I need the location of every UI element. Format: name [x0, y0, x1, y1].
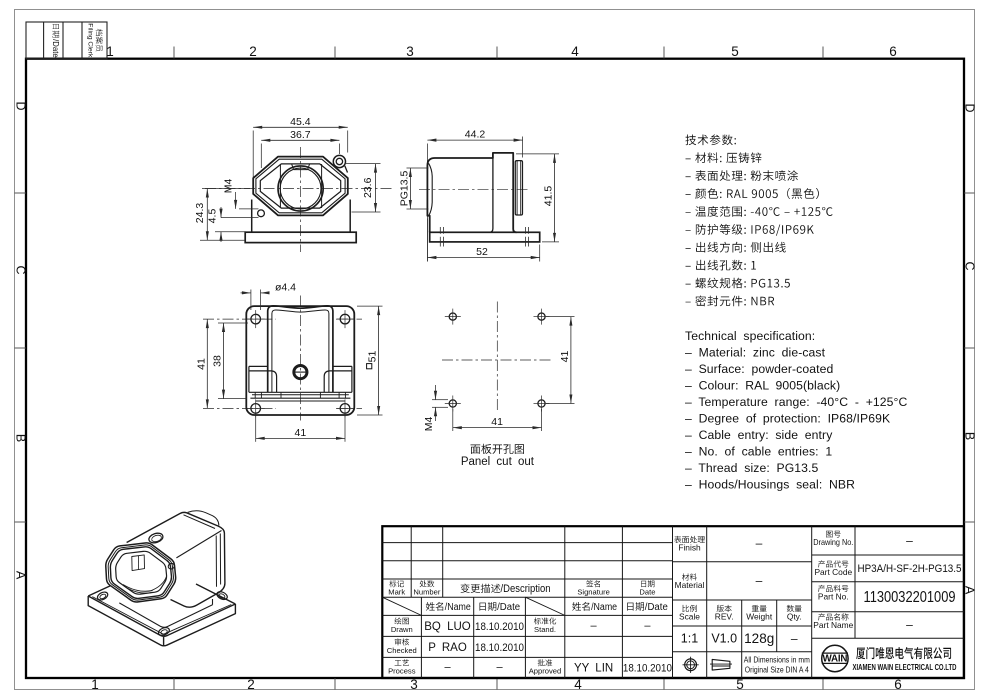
svg-text:– Temperature range: -40°C - +: – Temperature range: -40°C - +125°C — [685, 395, 908, 409]
svg-text:Process: Process — [388, 667, 416, 676]
svg-text:Part No.: Part No. — [818, 591, 849, 601]
svg-text:/Date: /Date — [51, 39, 60, 58]
svg-text:Scale: Scale — [679, 611, 700, 621]
svg-text:51: 51 — [367, 351, 379, 363]
svg-text:41: 41 — [491, 416, 503, 428]
svg-text:52: 52 — [476, 246, 488, 258]
svg-text:24.3: 24.3 — [194, 203, 206, 224]
svg-text:–: – — [756, 536, 763, 550]
svg-text:REV.: REV. — [715, 611, 734, 621]
svg-text:– Surface: powder-coated: – Surface: powder-coated — [685, 362, 833, 376]
svg-text:All Dimensions in mm: All Dimensions in mm — [744, 656, 810, 665]
svg-text:Approved: Approved — [529, 667, 562, 676]
svg-text:2: 2 — [249, 44, 257, 59]
svg-text:Date: Date — [639, 588, 655, 597]
svg-text:41: 41 — [295, 427, 307, 439]
svg-text:44.2: 44.2 — [465, 129, 486, 141]
svg-text:5: 5 — [731, 44, 739, 59]
svg-text:3: 3 — [406, 44, 414, 59]
svg-text:–: – — [791, 632, 798, 646]
svg-text:–: – — [496, 662, 503, 674]
svg-text:PG13.5: PG13.5 — [398, 171, 410, 207]
svg-text:/Name: /Name — [591, 602, 617, 613]
svg-text:ø4.4: ø4.4 — [275, 282, 296, 294]
svg-text:18.10.2010: 18.10.2010 — [475, 642, 524, 654]
svg-text:P RAO: P RAO — [428, 642, 467, 654]
svg-text:C: C — [14, 265, 28, 274]
svg-text:–: – — [906, 618, 913, 632]
svg-text:/Date: /Date — [497, 602, 521, 613]
svg-text:/Description: /Description — [501, 583, 551, 595]
svg-text:Material: Material — [675, 580, 705, 590]
svg-text:Drawing No.: Drawing No. — [813, 537, 853, 547]
svg-text:4: 4 — [574, 677, 582, 692]
svg-text:V1.0: V1.0 — [711, 632, 737, 646]
svg-text:/Date: /Date — [645, 602, 669, 613]
svg-text:M4: M4 — [223, 179, 235, 194]
svg-text:– Hoods/Housings seal: NBR: – Hoods/Housings seal: NBR — [685, 478, 855, 492]
svg-text:–: – — [756, 574, 763, 588]
svg-text:2: 2 — [247, 677, 255, 692]
svg-text:Checked: Checked — [387, 646, 417, 655]
svg-text:Drawn: Drawn — [391, 625, 413, 634]
svg-text:XIAMEN WAIN ELECTRICAL CO.LTD: XIAMEN WAIN ELECTRICAL CO.LTD — [853, 663, 957, 672]
svg-text:Weight: Weight — [746, 611, 773, 621]
svg-text:–: – — [644, 620, 651, 632]
svg-text:– No. of cable entries: 1: – No. of cable entries: 1 — [685, 445, 832, 459]
svg-text:Mark: Mark — [388, 588, 405, 597]
svg-text:– Material: zinc die-cast: – Material: zinc die-cast — [685, 346, 826, 360]
svg-text:18.10.2010: 18.10.2010 — [475, 621, 524, 633]
svg-text:6: 6 — [894, 677, 902, 692]
svg-text:Original Size DIN A 4: Original Size DIN A 4 — [745, 666, 809, 675]
svg-text:BQ LUO: BQ LUO — [424, 621, 471, 633]
svg-text:23.6: 23.6 — [362, 177, 374, 198]
svg-text:YY LIN: YY LIN — [574, 662, 613, 674]
svg-text:Signature: Signature — [577, 588, 610, 597]
svg-text:38: 38 — [212, 355, 224, 367]
svg-text:4: 4 — [571, 44, 579, 59]
svg-text:M4: M4 — [423, 417, 435, 432]
svg-text:WAIN: WAIN — [823, 654, 848, 665]
svg-text:Filing Clerk: Filing Clerk — [86, 23, 93, 58]
svg-text:4.5: 4.5 — [206, 209, 218, 224]
svg-text:36.7: 36.7 — [290, 129, 311, 141]
svg-text:41: 41 — [195, 358, 207, 370]
svg-text:– Cable entry: side entry: – Cable entry: side entry — [685, 428, 833, 442]
svg-text:– Degree of protection: IP68/I: – Degree of protection: IP68/IP69K — [685, 412, 890, 426]
svg-text:5: 5 — [736, 677, 744, 692]
svg-text:Part Code: Part Code — [814, 567, 852, 577]
svg-text:D: D — [14, 101, 28, 110]
svg-text:– Colour: RAL 9005(black): – Colour: RAL 9005(black) — [685, 379, 840, 393]
svg-text:3: 3 — [410, 677, 418, 692]
svg-text:B: B — [963, 432, 977, 440]
svg-text:1: 1 — [91, 677, 99, 692]
svg-text:D: D — [963, 103, 977, 112]
svg-text:128g: 128g — [744, 631, 774, 646]
svg-text:C: C — [963, 261, 977, 270]
svg-text:6: 6 — [889, 44, 897, 59]
svg-text:/Name: /Name — [445, 602, 471, 613]
svg-text:Part Name: Part Name — [813, 620, 853, 630]
svg-text:18.10.2010: 18.10.2010 — [623, 662, 672, 674]
svg-text:Number: Number — [413, 588, 440, 597]
svg-text:HP3A/H-SF-2H-PG13.5: HP3A/H-SF-2H-PG13.5 — [858, 563, 962, 575]
svg-text:Finish: Finish — [678, 542, 701, 552]
svg-text:–: – — [591, 620, 598, 632]
svg-text:1130032201009: 1130032201009 — [864, 589, 956, 606]
svg-text:B: B — [14, 434, 28, 442]
svg-text:–: – — [906, 534, 913, 548]
svg-text:41.5: 41.5 — [543, 186, 555, 207]
svg-text:– Thread size: PG13.5: – Thread size: PG13.5 — [685, 461, 819, 475]
svg-text:Stand.: Stand. — [534, 625, 556, 634]
svg-text:45.4: 45.4 — [290, 116, 311, 128]
svg-text:Qty.: Qty. — [787, 611, 802, 621]
svg-text:Technical specification:: Technical specification: — [685, 329, 815, 343]
svg-text:1:1: 1:1 — [681, 632, 698, 646]
svg-text:A: A — [14, 571, 28, 580]
svg-text:Panel cut out: Panel cut out — [461, 456, 535, 468]
svg-text:41: 41 — [559, 351, 571, 363]
svg-text:–: – — [444, 662, 451, 674]
